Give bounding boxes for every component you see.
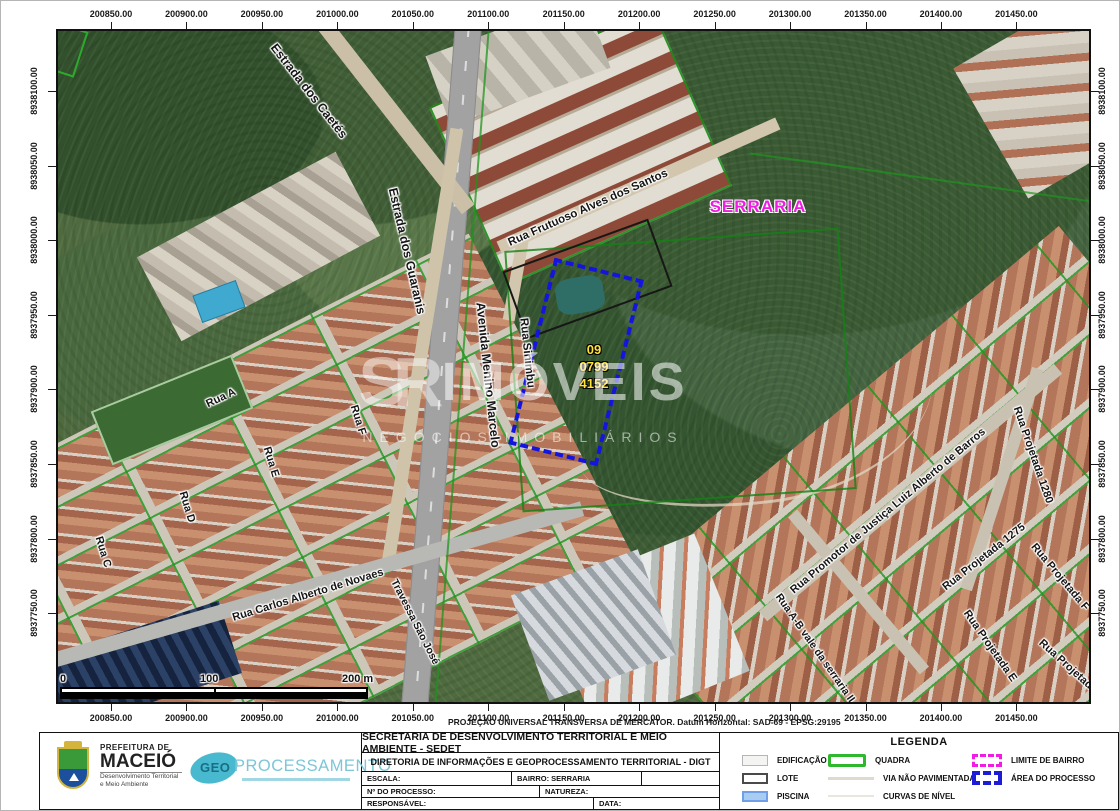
- grid-x-tick: [564, 22, 565, 29]
- legend-item: QUADRA: [828, 751, 975, 769]
- scale-bar-base: [60, 694, 368, 699]
- grid-x-label-bottom: 201450.00: [995, 713, 1038, 723]
- grid-x-label: 201450.00: [995, 9, 1038, 19]
- title-block-row1: SECRETARIA DE DESENVOLVIMENTO TERRITORIA…: [362, 733, 719, 753]
- grid-y-tick-right: [1091, 166, 1099, 167]
- scale-end-label: 200 m: [342, 673, 373, 685]
- grid-y-tick-left: [48, 91, 56, 92]
- legend-item: CURVAS DE NÍVEL: [828, 787, 975, 805]
- grid-y-label-left: 8937800.00: [29, 515, 39, 563]
- legend-item-label: LIMITE DE BAIRRO: [1011, 756, 1084, 765]
- grid-y-tick-right: [1091, 389, 1099, 390]
- grid-x-tick-bottom: [186, 704, 187, 711]
- grid-x-tick: [639, 22, 640, 29]
- grid-y-tick-left: [48, 613, 56, 614]
- grid-y-tick-left: [48, 539, 56, 540]
- grid-x-tick: [941, 22, 942, 29]
- grid-y-tick-right: [1091, 91, 1099, 92]
- grid-x-tick-bottom: [262, 704, 263, 711]
- geoprocessamento-logo: GEO PROCESSAMENTO: [190, 751, 355, 793]
- grid-x-tick: [790, 22, 791, 29]
- grid-x-label: 201250.00: [693, 9, 736, 19]
- limite-de-bairro-swatch: [972, 754, 1002, 767]
- lote-swatch: [742, 773, 768, 784]
- grid-x-tick-bottom: [1016, 704, 1017, 711]
- grid-x-tick-bottom: [639, 704, 640, 711]
- processo-field: Nº DO PROCESSO:: [362, 786, 540, 797]
- grid-y-label-left: 8937850.00: [29, 440, 39, 488]
- grid-x-tick: [1016, 22, 1017, 29]
- grid-x-label-bottom: 201350.00: [844, 713, 887, 723]
- title-block-footer: PREFEITURA DE MACEIÓ Desenvolvimento Ter…: [39, 732, 1119, 810]
- prefeitura-line2: MACEIÓ: [100, 752, 182, 773]
- grid-y-tick-right: [1091, 464, 1099, 465]
- grid-x-tick: [413, 22, 414, 29]
- grid-x-label: 201400.00: [920, 9, 963, 19]
- grid-x-label-bottom: 201400.00: [920, 713, 963, 723]
- grid-y-label-left: 8937950.00: [29, 291, 39, 339]
- maceio-coat-of-arms-icon: [54, 741, 94, 797]
- grid-x-tick-bottom: [790, 704, 791, 711]
- scale-bar-graphic: [60, 687, 368, 694]
- scale-bar: 0 100 200 m: [58, 673, 378, 703]
- grid-x-tick-bottom: [488, 704, 489, 711]
- satellite-map-canvas: 0907994152 SERRARIA Estrada dos CaetésEs…: [56, 29, 1091, 704]
- grid-x-tick-bottom: [111, 704, 112, 711]
- title-block-row3: ESCALA: BAIRRO: SERRARIA: [362, 772, 719, 786]
- grid-x-label-bottom: 201050.00: [392, 713, 435, 723]
- quadra-swatch: [828, 754, 866, 767]
- legend-item-label: QUADRA: [875, 756, 910, 765]
- responsavel-field: RESPONSÁVEL:: [362, 798, 594, 809]
- area-do-processo-swatch: [972, 771, 1002, 785]
- grid-x-tick: [866, 22, 867, 29]
- grid-y-tick-right: [1091, 240, 1099, 241]
- grid-x-label-bottom: 200850.00: [90, 713, 133, 723]
- title-block-row2: DIRETORIA DE INFORMAÇÕES E GEOPROCESSAME…: [362, 753, 719, 772]
- grid-x-label: 200850.00: [90, 9, 133, 19]
- legend-item-label: ÁREA DO PROCESSO: [1011, 774, 1095, 783]
- title-block-row4: Nº DO PROCESSO: NATUREZA:: [362, 786, 719, 798]
- legend-item-label: CURVAS DE NÍVEL: [883, 792, 955, 801]
- grid-x-label-bottom: 200900.00: [165, 713, 208, 723]
- grid-x-label: 200900.00: [165, 9, 208, 19]
- grid-y-label-left: 8938000.00: [29, 216, 39, 264]
- parcel-number: 09: [563, 341, 625, 358]
- grid-y-tick-left: [48, 166, 56, 167]
- scale-middle-label: 100: [200, 673, 218, 685]
- legend-item-label: PISCINA: [777, 792, 809, 801]
- grid-y-tick-left: [48, 464, 56, 465]
- legend-item-label: EDIFICAÇÃO: [777, 756, 827, 765]
- grid-y-tick-left: [48, 315, 56, 316]
- legend-column: QUADRAVIA NÃO PAVIMENTADACURVAS DE NÍVEL: [828, 751, 975, 805]
- legend-item-label: LOTE: [777, 774, 798, 783]
- grid-y-tick-left: [48, 389, 56, 390]
- legend-item: LOTE: [742, 769, 827, 787]
- grid-x-tick: [337, 22, 338, 29]
- parcel-number: 4152: [563, 375, 625, 392]
- grid-x-tick-bottom: [941, 704, 942, 711]
- grid-x-tick-bottom: [866, 704, 867, 711]
- edificacao-swatch: [742, 755, 768, 766]
- grid-y-tick-left: [48, 240, 56, 241]
- grid-x-tick: [186, 22, 187, 29]
- legend-panel: LEGENDA EDIFICAÇÃOLOTEPISCINAQUADRAVIA N…: [720, 733, 1118, 809]
- parcel-number-labels: 0907994152: [563, 341, 625, 392]
- grid-y-tick-right: [1091, 539, 1099, 540]
- legend-column: LIMITE DE BAIRROÁREA DO PROCESSO: [972, 751, 1095, 787]
- grid-x-label: 201200.00: [618, 9, 661, 19]
- grid-x-tick: [488, 22, 489, 29]
- grid-y-label-left: 8937750.00: [29, 589, 39, 637]
- grid-x-label: 201350.00: [844, 9, 887, 19]
- geo-logo-bold-text: GEO: [200, 760, 230, 775]
- legend-item: EDIFICAÇÃO: [742, 751, 827, 769]
- bairro-field: BAIRRO: SERRARIA: [512, 772, 642, 785]
- geo-logo-tagline-decoration: [242, 778, 350, 781]
- piscina-swatch: [742, 791, 768, 802]
- grid-y-label-left: 8938050.00: [29, 142, 39, 190]
- grid-x-tick-bottom: [413, 704, 414, 711]
- grid-x-tick-bottom: [564, 704, 565, 711]
- grid-x-label: 201050.00: [392, 9, 435, 19]
- legend-item: VIA NÃO PAVIMENTADA: [828, 769, 975, 787]
- grid-x-label: 201300.00: [769, 9, 812, 19]
- grid-x-label: 201000.00: [316, 9, 359, 19]
- legend-column: EDIFICAÇÃOLOTEPISCINA: [742, 751, 827, 805]
- grid-x-tick-bottom: [715, 704, 716, 711]
- logos-panel: PREFEITURA DE MACEIÓ Desenvolvimento Ter…: [40, 733, 362, 809]
- scale-start-label: 0: [60, 673, 66, 685]
- grid-y-tick-right: [1091, 613, 1099, 614]
- grid-x-tick-bottom: [337, 704, 338, 711]
- via-nao-pavimentada-swatch: [828, 777, 874, 780]
- legend-item: PISCINA: [742, 787, 827, 805]
- legend-item: ÁREA DO PROCESSO: [972, 769, 1095, 787]
- projection-note: PROJEÇÃO UNIVERSAL TRANSVERSA DE MERCATO…: [448, 717, 841, 727]
- grid-x-label: 201150.00: [543, 9, 585, 19]
- empty-field: [642, 772, 719, 785]
- grid-x-label-bottom: 200950.00: [241, 713, 284, 723]
- grid-x-tick: [262, 22, 263, 29]
- grid-y-label-left: 8937900.00: [29, 366, 39, 414]
- map-sheet: 200850.00200850.00200900.00200900.002009…: [0, 0, 1120, 811]
- grid-x-label: 200950.00: [241, 9, 284, 19]
- legend-title: LEGENDA: [720, 736, 1118, 748]
- grid-x-tick: [111, 22, 112, 29]
- grid-x-label-bottom: 201000.00: [316, 713, 359, 723]
- grid-y-tick-right: [1091, 315, 1099, 316]
- legend-item-label: VIA NÃO PAVIMENTADA: [883, 774, 975, 783]
- data-field: DATA:: [594, 798, 719, 809]
- legend-item: LIMITE DE BAIRRO: [972, 751, 1095, 769]
- grid-y-label-left: 8938100.00: [29, 67, 39, 115]
- curvas-de-nivel-swatch: [828, 795, 874, 797]
- neighborhood-label: SERRARIA: [658, 197, 858, 217]
- title-block: SECRETARIA DE DESENVOLVIMENTO TERRITORIA…: [362, 733, 720, 809]
- title-block-row5: RESPONSÁVEL: DATA:: [362, 798, 719, 809]
- natureza-field: NATUREZA:: [540, 786, 719, 797]
- grid-x-label: 201100.00: [467, 9, 509, 19]
- grid-x-tick: [715, 22, 716, 29]
- escala-field: ESCALA:: [362, 772, 512, 785]
- parcel-number: 0799: [563, 358, 625, 375]
